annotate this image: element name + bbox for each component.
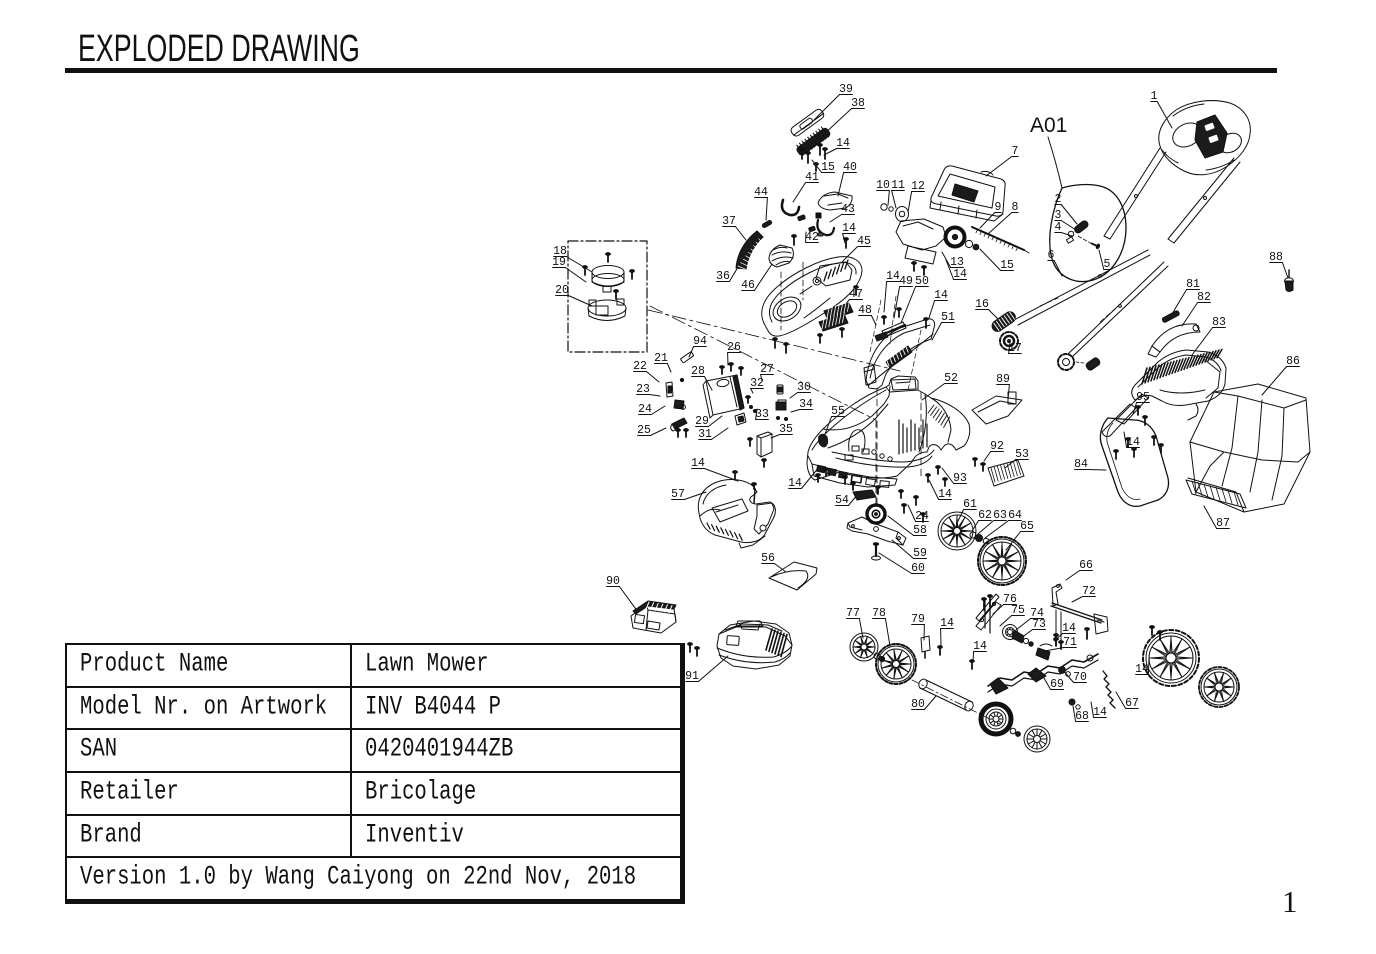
svg-text:A01: A01 bbox=[1030, 114, 1067, 137]
